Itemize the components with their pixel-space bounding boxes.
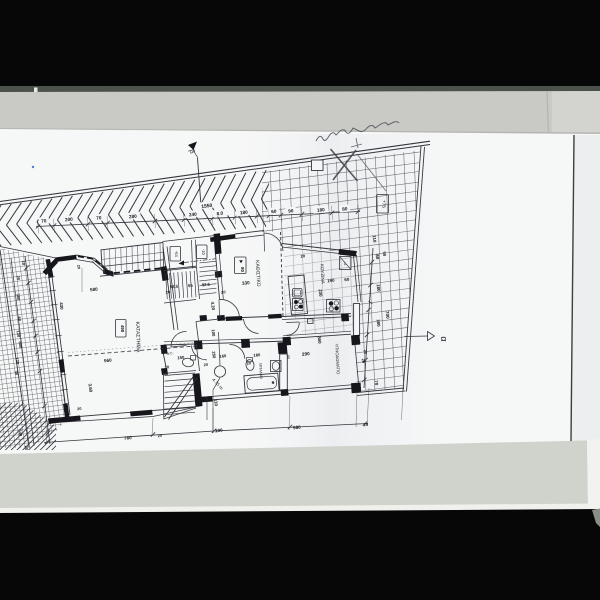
svg-text:100: 100 bbox=[211, 329, 217, 337]
svg-text:20: 20 bbox=[77, 407, 82, 411]
svg-text:250: 250 bbox=[211, 351, 217, 359]
svg-text:180: 180 bbox=[376, 319, 382, 327]
svg-text:20: 20 bbox=[204, 363, 209, 367]
svg-text:160: 160 bbox=[219, 353, 227, 359]
svg-text:-64: -64 bbox=[174, 251, 179, 258]
svg-text:490: 490 bbox=[120, 325, 125, 333]
svg-text:20: 20 bbox=[76, 265, 80, 270]
svg-text:ΜΠΑΝΙΟ: ΜΠΑΝΙΟ bbox=[258, 363, 264, 379]
svg-text:700: 700 bbox=[385, 311, 391, 320]
svg-text:180: 180 bbox=[253, 352, 261, 358]
svg-text:8.0: 8.0 bbox=[216, 211, 223, 217]
svg-text:92.5: 92.5 bbox=[202, 282, 211, 288]
svg-text:70: 70 bbox=[96, 215, 102, 221]
svg-text:3.60: 3.60 bbox=[88, 383, 94, 393]
svg-text:430: 430 bbox=[59, 302, 65, 310]
svg-text:92.5: 92.5 bbox=[170, 284, 179, 290]
svg-text:180: 180 bbox=[317, 207, 326, 213]
svg-text:760: 760 bbox=[124, 435, 133, 441]
svg-text:70: 70 bbox=[41, 218, 47, 224]
svg-text:580: 580 bbox=[90, 287, 99, 293]
svg-text:90: 90 bbox=[286, 355, 290, 360]
svg-text:60: 60 bbox=[271, 209, 277, 215]
svg-text:20: 20 bbox=[247, 361, 252, 365]
svg-text:180: 180 bbox=[240, 210, 249, 216]
svg-text:180: 180 bbox=[376, 284, 382, 292]
svg-text:α: α bbox=[439, 336, 449, 341]
svg-text:80: 80 bbox=[240, 267, 245, 272]
svg-text:280: 280 bbox=[129, 214, 138, 220]
svg-text:90: 90 bbox=[288, 208, 294, 214]
svg-text:20: 20 bbox=[158, 434, 163, 438]
svg-text:360: 360 bbox=[317, 336, 323, 344]
svg-text:110: 110 bbox=[372, 235, 378, 243]
svg-text:-10: -10 bbox=[201, 249, 206, 256]
svg-text:ΚΑΤΑΣΤΗΜΑ: ΚΑΤΑΣΤΗΜΑ bbox=[134, 322, 141, 353]
svg-text:330: 330 bbox=[242, 280, 251, 286]
svg-text:110: 110 bbox=[213, 399, 219, 407]
svg-text:230: 230 bbox=[318, 289, 324, 297]
svg-text:190: 190 bbox=[327, 278, 335, 284]
svg-text:190: 190 bbox=[215, 428, 224, 434]
svg-text:580: 580 bbox=[293, 425, 302, 431]
svg-text:200: 200 bbox=[65, 217, 74, 223]
svg-text:+75: +75 bbox=[382, 200, 387, 208]
svg-text:150: 150 bbox=[177, 355, 185, 361]
svg-text:4.20: 4.20 bbox=[210, 301, 216, 311]
svg-text:80: 80 bbox=[342, 206, 348, 212]
svg-text:240: 240 bbox=[189, 212, 198, 218]
svg-text:560: 560 bbox=[104, 358, 113, 364]
svg-text:290: 290 bbox=[302, 351, 311, 357]
